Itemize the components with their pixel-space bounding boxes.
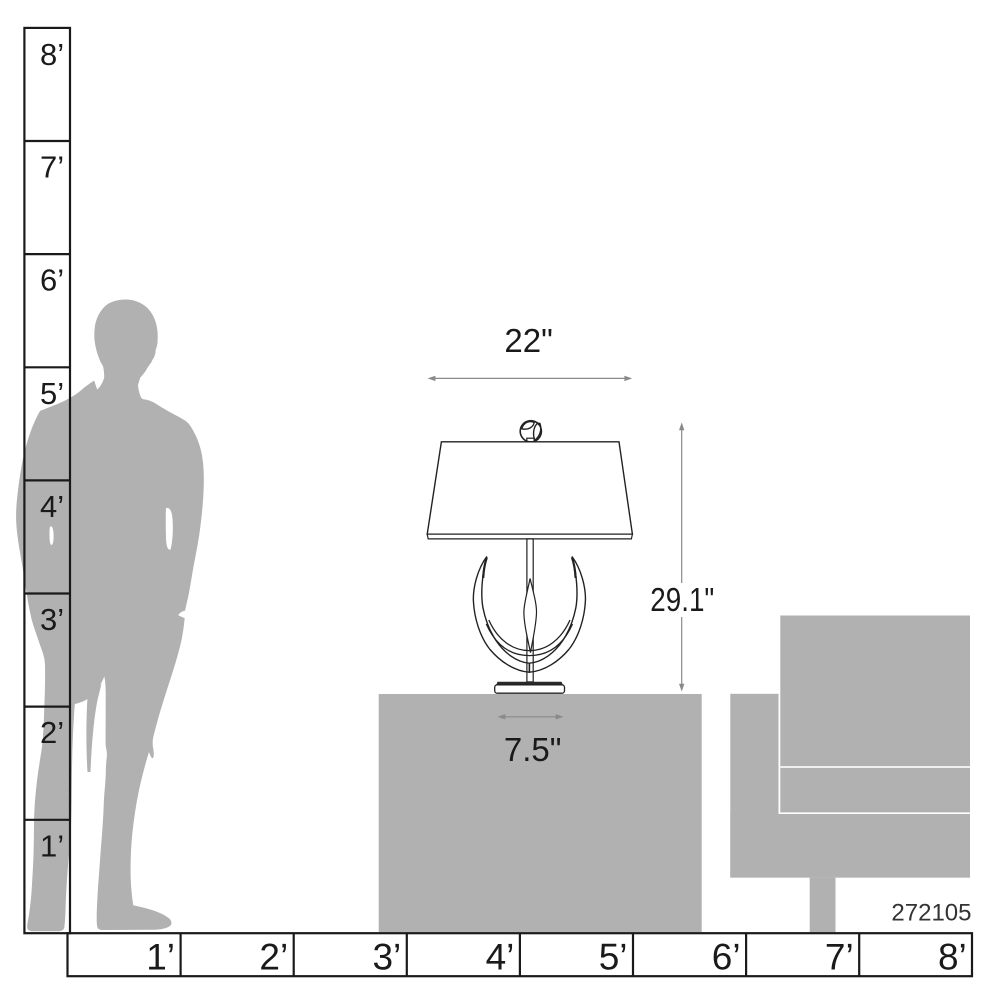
svg-text:6’: 6’	[712, 937, 741, 978]
svg-text:8’: 8’	[938, 937, 967, 978]
svg-text:2’: 2’	[259, 937, 288, 978]
svg-text:1’: 1’	[40, 828, 64, 863]
svg-text:22": 22"	[504, 322, 552, 359]
svg-text:5’: 5’	[40, 376, 64, 411]
svg-text:5’: 5’	[599, 937, 628, 978]
svg-text:4’: 4’	[40, 489, 64, 524]
svg-text:3’: 3’	[40, 602, 64, 637]
svg-text:4’: 4’	[486, 937, 515, 978]
svg-text:7’: 7’	[40, 150, 64, 185]
svg-text:272105: 272105	[891, 900, 971, 927]
svg-text:6’: 6’	[40, 263, 64, 298]
svg-text:2’: 2’	[40, 715, 64, 750]
svg-text:29.1": 29.1"	[650, 581, 714, 618]
svg-text:1’: 1’	[146, 937, 175, 978]
svg-text:8’: 8’	[40, 37, 64, 72]
svg-text:7’: 7’	[825, 937, 854, 978]
svg-text:3’: 3’	[372, 937, 401, 978]
svg-text:7.5": 7.5"	[504, 731, 562, 768]
